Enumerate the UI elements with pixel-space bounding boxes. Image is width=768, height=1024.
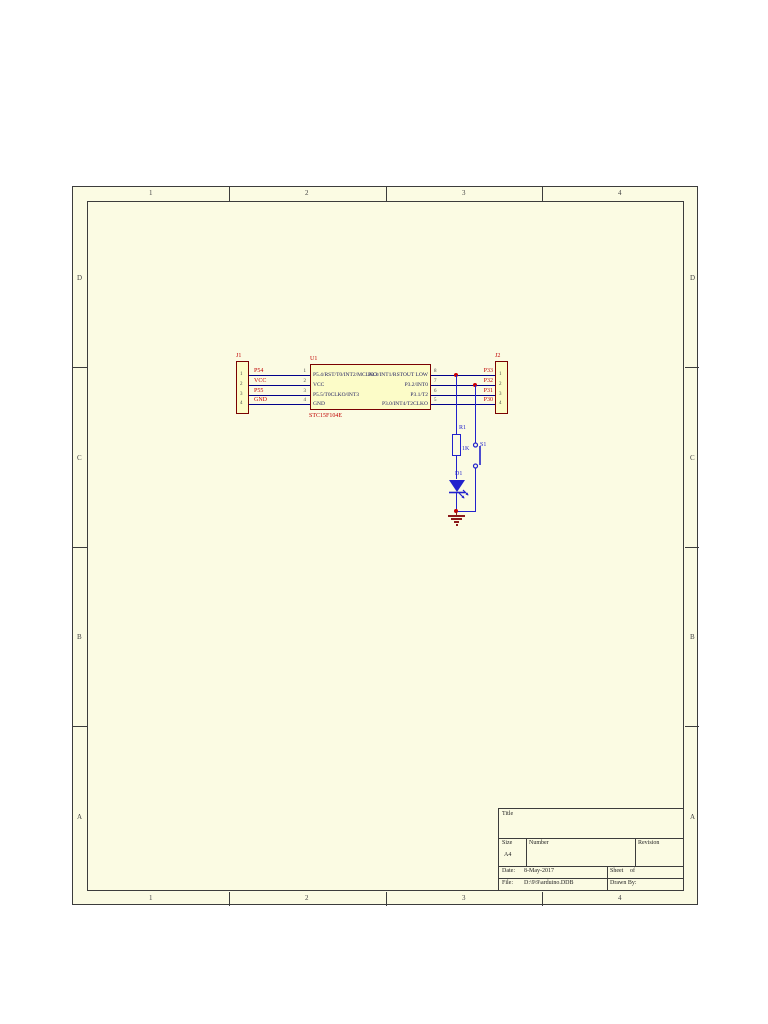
sheet-label: Sheet xyxy=(610,868,623,875)
net-label: VCC xyxy=(254,378,266,384)
led-symbol xyxy=(446,477,470,503)
zone-tick xyxy=(685,726,699,727)
j2-pin-number: 4 xyxy=(499,401,502,406)
date-value: 8-May-2017 xyxy=(524,868,554,875)
connector-j2 xyxy=(495,361,508,414)
file-value: D:\9\9\arduino.DDB xyxy=(524,880,574,887)
wire-p30 xyxy=(431,404,495,405)
wire-switch-to-gnd xyxy=(475,468,476,512)
u1-pin-number: 5 xyxy=(434,398,437,403)
u1-part-number: STC15F104E xyxy=(309,413,342,419)
ground-icon xyxy=(448,515,465,517)
title-block-line xyxy=(607,866,608,890)
connector-j1 xyxy=(236,361,249,414)
u1-pin-name: P3.1/T2 xyxy=(348,392,428,398)
u1-pin-name: VCC xyxy=(313,382,324,388)
wire-gnd-node xyxy=(456,511,476,512)
wire-p33 xyxy=(431,375,495,376)
wire-p54 xyxy=(249,375,310,376)
u1-pin-number: 7 xyxy=(434,379,437,384)
title-block-line xyxy=(499,866,683,867)
title-block-line xyxy=(499,878,683,879)
zone-label-right-c: C xyxy=(690,455,695,462)
zone-tick xyxy=(229,892,230,906)
drawn-by-label: Drawn By: xyxy=(610,880,637,887)
u1-pin-number: 6 xyxy=(434,389,437,394)
zone-label-top-2: 2 xyxy=(305,190,309,197)
schematic-sheet: 1 2 3 4 1 2 3 4 D C B A D C B A J1 1 2 3… xyxy=(72,186,698,905)
u1-pin-name: P3.0/INT4/T2CLKO xyxy=(348,401,428,407)
ground-icon xyxy=(454,521,459,523)
u1-pin-name: P3.3/INT1/RSTOUT LOW xyxy=(348,372,428,378)
title-block-line xyxy=(635,838,636,866)
zone-tick xyxy=(73,367,87,368)
zone-tick xyxy=(73,547,87,548)
title-block: Title Size A4 Number Revision Date: 8-Ma… xyxy=(498,808,684,891)
wire-led-branch xyxy=(456,375,457,434)
date-label: Date: xyxy=(502,868,515,875)
u1-pin-number: 4 xyxy=(296,398,306,403)
wire-p55 xyxy=(249,395,310,396)
zone-tick xyxy=(229,187,230,201)
j1-pin-number: 2 xyxy=(240,382,243,387)
zone-label-bottom-3: 3 xyxy=(462,895,466,902)
zone-label-bottom-4: 4 xyxy=(618,895,622,902)
zone-tick xyxy=(685,367,699,368)
file-label: File: xyxy=(502,880,513,887)
title-label: Title xyxy=(502,811,513,818)
sheet-inner-border xyxy=(87,201,684,891)
net-label: P33 xyxy=(469,368,493,374)
ground-icon xyxy=(451,518,462,520)
zone-label-left-a: A xyxy=(77,814,82,821)
zone-label-left-c: C xyxy=(77,455,82,462)
ground-icon xyxy=(456,524,458,526)
pdf-page: 1 2 3 4 1 2 3 4 D C B A D C B A J1 1 2 3… xyxy=(0,0,768,1024)
net-label: P54 xyxy=(254,368,263,374)
wire-gnd xyxy=(249,404,310,405)
zone-tick xyxy=(73,726,87,727)
zone-label-top-4: 4 xyxy=(618,190,622,197)
j2-pin-number: 3 xyxy=(499,392,502,397)
j2-designator: J2 xyxy=(495,353,500,359)
j1-pin-number: 4 xyxy=(240,401,243,406)
u1-pin-name: P3.2/INT0 xyxy=(348,382,428,388)
wire-p31 xyxy=(431,395,495,396)
title-block-line xyxy=(526,838,527,866)
r1-designator: R1 xyxy=(459,425,466,431)
zone-label-right-a: A xyxy=(690,814,695,821)
u1-pin-number: 2 xyxy=(296,379,306,384)
j1-designator: J1 xyxy=(236,353,241,359)
zone-tick xyxy=(542,892,543,906)
zone-label-right-d: D xyxy=(690,275,695,282)
zone-tick xyxy=(386,187,387,201)
u1-pin-number: 1 xyxy=(296,369,306,374)
zone-label-bottom-2: 2 xyxy=(305,895,309,902)
wire-p32 xyxy=(431,385,495,386)
u1-pin-number: 8 xyxy=(434,369,437,374)
zone-label-top-3: 3 xyxy=(462,190,466,197)
wire-vcc xyxy=(249,385,310,386)
u1-pin-name: GND xyxy=(313,401,325,407)
j2-pin-number: 1 xyxy=(499,372,502,377)
zone-label-right-b: B xyxy=(690,634,695,641)
net-label: GND xyxy=(254,397,267,403)
j1-pin-number: 3 xyxy=(240,392,243,397)
zone-label-bottom-1: 1 xyxy=(149,895,153,902)
u1-pin-number: 3 xyxy=(296,389,306,394)
j1-pin-number: 1 xyxy=(240,372,243,377)
size-label: Size xyxy=(502,840,512,847)
wire-switch-branch xyxy=(475,385,476,443)
net-label: P30 xyxy=(469,397,493,403)
switch-symbol xyxy=(469,441,485,471)
number-label: Number xyxy=(529,840,549,847)
net-label: P31 xyxy=(469,388,493,394)
resistor-r1 xyxy=(452,434,461,456)
net-label: P55 xyxy=(254,388,263,394)
u1-designator: U1 xyxy=(310,356,317,362)
zone-label-left-b: B xyxy=(77,634,82,641)
sheet-of-label: of xyxy=(630,868,635,875)
zone-label-top-1: 1 xyxy=(149,190,153,197)
j2-pin-number: 2 xyxy=(499,382,502,387)
zone-tick xyxy=(685,547,699,548)
zone-tick xyxy=(386,892,387,906)
revision-label: Revision xyxy=(638,840,659,847)
zone-tick xyxy=(542,187,543,201)
zone-label-left-d: D xyxy=(77,275,82,282)
size-value: A4 xyxy=(504,852,511,859)
